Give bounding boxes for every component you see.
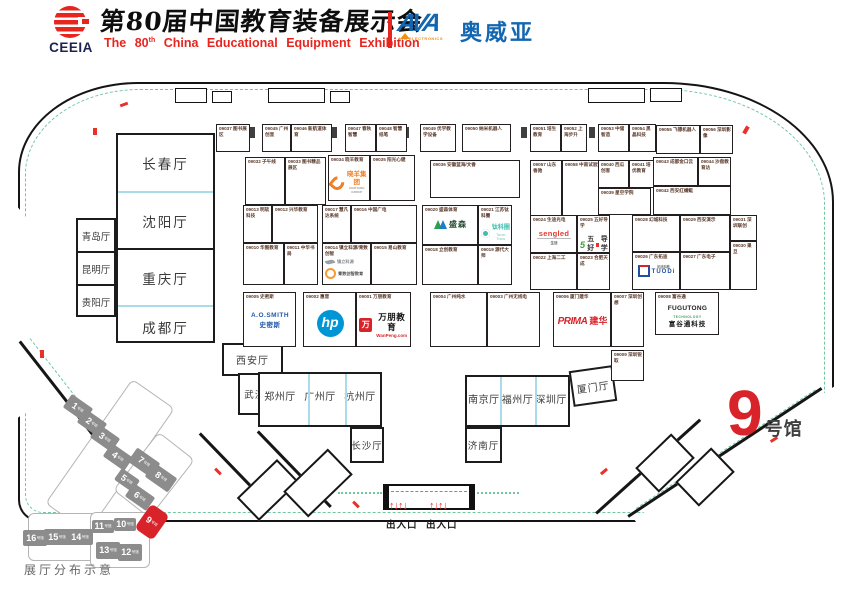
tuodi-square-icon bbox=[638, 265, 650, 277]
hall-chengdu: 成都厅 bbox=[118, 305, 213, 347]
pillar bbox=[521, 127, 527, 138]
booth-09056: 09056 深圳影像 bbox=[700, 125, 733, 154]
roof-structure bbox=[268, 88, 325, 103]
booth-09004: 09004 广州纯水 bbox=[430, 292, 487, 347]
booth-09032: 09032 子午线 bbox=[245, 157, 285, 205]
booth-09047: 09047 春秋智慧 bbox=[345, 124, 376, 152]
wanpeng-logo: 万万朋教育WanPeng.com bbox=[359, 312, 409, 339]
hall-fuzhou: 福州厅 bbox=[501, 377, 535, 425]
booth-09033: 09033 图书精品展区 bbox=[285, 157, 326, 205]
wanpeng-seal-icon: 万 bbox=[359, 318, 372, 332]
booth-09009: 09009 深圳锐取 bbox=[611, 350, 644, 381]
booth-09031: 09031 深圳联创 bbox=[730, 215, 757, 241]
red-square-icon bbox=[596, 243, 598, 247]
booth-09010: 09010 华图教育 bbox=[243, 243, 284, 285]
roof-structure bbox=[330, 91, 350, 103]
hall-guiyang: 贵阳厅 bbox=[78, 284, 114, 317]
minimap-hall-12: 12号馆 bbox=[118, 544, 142, 561]
taikeyuan-logo: 钛科圈Tacon Trans bbox=[481, 225, 510, 241]
booth-09037: 09037 图书展区 bbox=[216, 124, 250, 152]
bottom-hall-row-right: 南京厅 福州厅 深圳厅 bbox=[465, 375, 570, 427]
bottom-hall-row-left: 郑州厅 广州厅 杭州厅 bbox=[258, 372, 382, 427]
entrance-arrows-icon: ↑↓↑↓ bbox=[389, 500, 407, 512]
door-mark bbox=[93, 128, 97, 135]
booth-09028: 09028 幻城科技 bbox=[632, 215, 680, 252]
header-divider bbox=[388, 12, 392, 48]
booth-09014: 09014 镇立科源/青数创智 镇立科源 青数创智教育 bbox=[322, 243, 371, 285]
booth-09016: 09016 中国广电 bbox=[351, 205, 417, 243]
booth-09051: 09051 培生教育 bbox=[530, 124, 561, 152]
booth-09017: 09017 慧凡达系统 bbox=[322, 205, 351, 243]
booth-09007: 09007 深圳创想 bbox=[611, 292, 644, 347]
booth-09023: 09023 合肥天成 bbox=[577, 253, 610, 290]
tuodi-logo: 拓迪科教TUODi bbox=[635, 265, 678, 277]
booth-09013: 09013 明软科技 bbox=[243, 205, 272, 243]
wuhao-logo: 5五好导学 bbox=[580, 236, 608, 253]
booth-09052: 09052 上海步升 bbox=[561, 124, 587, 152]
booth-09020: 09020 盛森体育 盛森 bbox=[422, 205, 478, 245]
far-left-hall-column: 青岛厅 昆明厅 贵阳厅 bbox=[76, 218, 116, 317]
hall-9-badge: 9 号馆 bbox=[727, 385, 803, 441]
booth-09049: 09049 优学教学设备 bbox=[420, 124, 456, 152]
booth-09006: 09006 厦门建华 PRIMA建华 bbox=[553, 292, 611, 347]
left-hall-column: 长春厅 沈阳厅 重庆厅 成都厅 bbox=[116, 133, 215, 343]
hall-qingdao: 青岛厅 bbox=[78, 220, 114, 251]
booth-09046: 09046 新航道体育 bbox=[291, 124, 332, 152]
booth-09043: 09043 成都金口云 bbox=[653, 157, 698, 186]
door-mark bbox=[40, 350, 44, 358]
booth-09036: 09036 安徽蓝海/文香 bbox=[430, 160, 520, 198]
ava-logo-icon: AVA AVA ELECTRONICS bbox=[398, 10, 456, 46]
roof-structure bbox=[588, 88, 645, 103]
hall-chongqing: 重庆厅 bbox=[118, 248, 213, 305]
minimap-hall-11: 11号馆 bbox=[92, 520, 114, 533]
fugutong-logo: FUGUTONGTECHNOLOGY富谷通科技 bbox=[658, 305, 717, 330]
booth-09042: 09042 西安红蜻蜓 bbox=[653, 186, 731, 215]
booth-09024: 09024 生迪光电 sengled生迪 bbox=[530, 215, 577, 253]
booth-09019: 09019 源代大师 bbox=[478, 245, 512, 285]
booth-09044: 09044 沙盘教育达 bbox=[698, 157, 731, 186]
booth-09050: 09050 纳米机器人 bbox=[462, 124, 511, 152]
exhibition-title-en: The 80th China Educational Equipment Exh… bbox=[104, 36, 420, 50]
zhenli-logo: 镇立科源 bbox=[325, 259, 369, 264]
booth-09008: 09008 富谷通 FUGUTONGTECHNOLOGY富谷通科技 bbox=[655, 292, 719, 335]
minimap-hall-16: 16号馆 bbox=[23, 530, 47, 546]
booth-09040: 09040 西瓜创客 bbox=[598, 160, 629, 188]
booth-09005: 09005 史密斯 A.O.SMITH史密斯 bbox=[243, 292, 296, 347]
ceeia-logo-icon bbox=[54, 6, 90, 38]
hall-guangzhou: 广州厅 bbox=[300, 374, 340, 425]
hall-changchun: 长春厅 bbox=[118, 135, 213, 191]
booth-09003: 09003 广州无线电 bbox=[487, 292, 540, 347]
hall-jinan: 济南厅 bbox=[465, 427, 502, 463]
taikeyuan-circle-icon bbox=[481, 229, 490, 238]
hall-zhengzhou: 郑州厅 bbox=[260, 374, 300, 425]
entrance-arrows-icon: ↑↓↑↓ bbox=[429, 500, 447, 512]
sengled-logo: sengled生迪 bbox=[533, 229, 575, 245]
hall-shenzhen: 深圳厅 bbox=[534, 377, 568, 425]
booth-09053: 09053 中储智造 bbox=[598, 124, 629, 152]
ava-orange-triangle-icon bbox=[400, 33, 410, 39]
shengsen-logo: 盛森 bbox=[425, 220, 476, 230]
booth-09041: 09041 培优教育 bbox=[629, 160, 656, 188]
minimap-hall-15: 15号馆 bbox=[44, 529, 70, 545]
roof-structure bbox=[212, 91, 232, 103]
minimap-hall-10: 10号馆 bbox=[114, 518, 136, 531]
hall-shenyang: 沈阳厅 bbox=[118, 191, 213, 248]
booth-09027: 09027 广东电子 bbox=[680, 252, 730, 290]
prima-jianhua-logo: PRIMA建华 bbox=[556, 316, 609, 329]
entrance-label: 出入口 bbox=[386, 517, 418, 531]
qingshu-logo: 青数创智教育 bbox=[325, 268, 369, 279]
booth-09012: 09012 兴华教育 bbox=[272, 205, 318, 243]
booth-09002: 09002 惠普 hp bbox=[303, 292, 356, 347]
zhenli-swoosh-icon bbox=[325, 259, 336, 265]
ceeia-logo-text: CEEIA bbox=[38, 40, 104, 55]
ao-smith-logo: A.O.SMITH史密斯 bbox=[246, 312, 294, 331]
booth-09035: 09035 阳光心健 bbox=[370, 155, 415, 201]
booth-09030: 09030 果旦 bbox=[730, 241, 757, 290]
floor-plan-page: CEEIA 第80届中国教育装备展示会 The 80th China Educa… bbox=[0, 0, 846, 597]
entrance-label: 出入口 bbox=[426, 517, 458, 531]
booth-09026: 09026 广东拓迪 拓迪科教TUODi bbox=[632, 252, 680, 290]
hall-nanjing: 南京厅 bbox=[467, 377, 501, 425]
booth-09034: 09034 晓羊教育 晓羊集团XIAOYANG GROUP bbox=[328, 155, 370, 201]
booth-09055: 09055 飞镖机器人 bbox=[656, 125, 700, 154]
exhibition-title-cn: 第80届中国教育装备展示会 bbox=[98, 2, 424, 38]
xiaoyang-flame-icon bbox=[328, 173, 347, 192]
hall-kunming: 昆明厅 bbox=[78, 251, 114, 284]
qingshu-ring-icon bbox=[325, 268, 336, 279]
booth-09018: 09018 立创教育 bbox=[422, 245, 478, 285]
minimap-hall-14: 14号馆 bbox=[67, 529, 93, 545]
booth-09011: 09011 中华书局 bbox=[284, 243, 318, 285]
booth-09048: 09048 智慧纸笔 bbox=[376, 124, 407, 152]
sponsor-name: 奥威亚 bbox=[460, 15, 535, 47]
booth-09022: 09022 上海二工 bbox=[530, 253, 577, 290]
booth-09001: 09001 万朋教育 万万朋教育WanPeng.com bbox=[356, 292, 411, 347]
booth-09054: 09054 黑晶科技 bbox=[629, 124, 656, 152]
booth-09021: 09021 江苏钛科圈 钛科圈Tacon Trans bbox=[478, 205, 512, 245]
roof-structure bbox=[650, 88, 682, 102]
booth-09029: 09029 西安演示 bbox=[680, 215, 730, 252]
hp-logo: hp bbox=[317, 310, 344, 337]
minimap-hall-13: 13号馆 bbox=[96, 542, 120, 559]
booth-09015: 09015 易山教育 bbox=[371, 243, 417, 285]
minimap-caption: 展厅分布示意 bbox=[24, 561, 114, 578]
roof-structure bbox=[175, 88, 207, 103]
hall-changsha: 长沙厅 bbox=[350, 427, 384, 463]
hall-xiamen: 厦门厅 bbox=[569, 365, 618, 407]
booth-09025: 09025 五好导学 5五好导学 bbox=[577, 215, 610, 253]
booth-09045: 09045 广州创显 bbox=[262, 124, 291, 152]
booth-09039: 09039 星空学院 bbox=[598, 188, 651, 215]
pillar bbox=[589, 127, 595, 138]
xiaoyang-group-logo: 晓羊集团XIAOYANG GROUP bbox=[331, 171, 368, 195]
